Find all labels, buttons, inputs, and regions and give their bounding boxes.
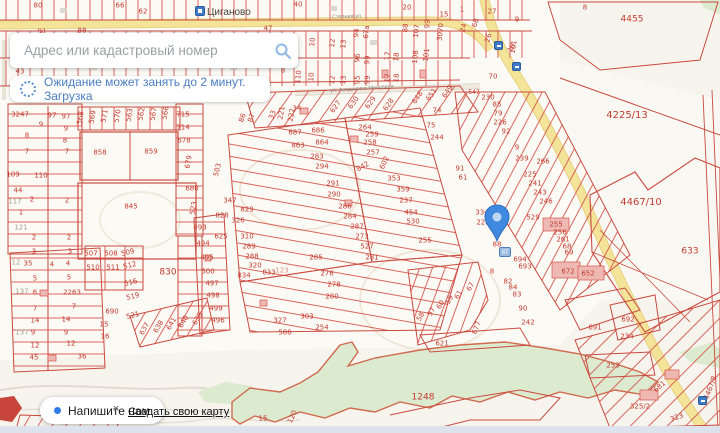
search-input[interactable]: [22, 42, 268, 59]
street-name-label: Степная ул.: [332, 13, 363, 20]
road-sign-icon: [494, 41, 503, 50]
notification-dot: [54, 407, 61, 414]
map-application: 8066629188474020151279844552468261013070…: [0, 0, 720, 433]
road-sign-icon: [698, 396, 707, 405]
transit-stop-icon: [195, 6, 205, 16]
road-sign-icon: [512, 62, 521, 71]
spinner-icon: [20, 81, 36, 97]
loading-banner: Ожидание может занять до 2 минут. Загруз…: [10, 76, 270, 102]
search-icon[interactable]: [268, 41, 298, 61]
street-name-label: ул.: [0, 65, 1, 72]
place-label: Циганово: [207, 7, 251, 18]
location-pin-icon[interactable]: [483, 204, 511, 242]
search-bar: [10, 33, 298, 68]
close-chat-icon[interactable]: ×: [113, 403, 119, 415]
loading-text: Ожидание может занять до 2 минут. Загруз…: [44, 75, 270, 103]
create-map-link[interactable]: Создать свою карту: [128, 406, 229, 418]
bottom-panel-edge: [0, 426, 720, 433]
marker-badge: 87: [499, 247, 511, 257]
